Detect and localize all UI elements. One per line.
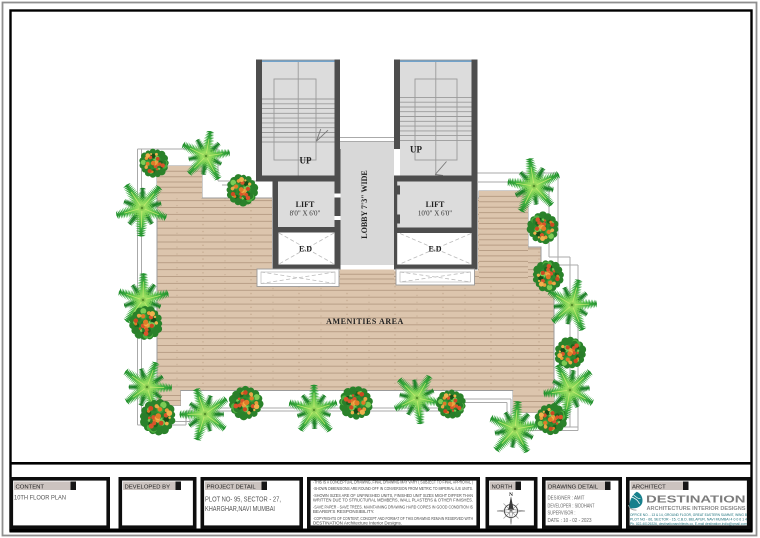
svg-text:BEARER'S RESPONSIBILITY.: BEARER'S RESPONSIBILITY.	[313, 509, 374, 514]
svg-text:UP: UP	[410, 145, 422, 155]
svg-text:LOBBY 7'3" WIDE: LOBBY 7'3" WIDE	[360, 170, 369, 238]
svg-text:KHARGHAR,NAVI MUMBAI: KHARGHAR,NAVI MUMBAI	[205, 505, 275, 513]
svg-text:DRAWING DETAIL: DRAWING DETAIL	[548, 484, 599, 490]
svg-text:ARCHITECT: ARCHITECT	[632, 484, 666, 490]
svg-text:LIFT: LIFT	[426, 200, 445, 209]
svg-text:DESTINATION Architecture Inter: DESTINATION Architecture Interior Design…	[313, 520, 402, 525]
svg-text:10'0" X 6'0": 10'0" X 6'0"	[418, 210, 452, 218]
svg-text:DEVELOPER : SIDDHANT: DEVELOPER : SIDDHANT	[548, 504, 596, 510]
svg-text:DESTINATION: DESTINATION	[646, 495, 746, 506]
svg-text:SUPERVISOR :: SUPERVISOR :	[548, 511, 576, 517]
svg-text:-THIS IS A CONCEPTUAL DRAWING,: -THIS IS A CONCEPTUAL DRAWING, FINAL DRA…	[313, 479, 473, 484]
svg-text:E.D: E.D	[428, 245, 441, 254]
svg-text:CONTENT: CONTENT	[16, 484, 45, 490]
svg-text:NORTH: NORTH	[492, 484, 513, 490]
svg-text:PLOT NO - 66, SECTOR - 15: PLOT NO - 66, SECTOR - 15, C.B.D. BELAPU…	[630, 518, 747, 522]
svg-text:E.D: E.D	[299, 245, 312, 254]
svg-text:UP: UP	[300, 156, 312, 166]
svg-text:OFFICE NO. - 13 & 14, GROUN: OFFICE NO. - 13 & 14, GROUND FLOOR, GREA…	[630, 513, 748, 517]
svg-text:10TH FLOOR PLAN: 10TH FLOOR PLAN	[14, 495, 66, 502]
svg-text:DEVELOPED BY: DEVELOPED BY	[125, 484, 171, 490]
svg-text:8'0" X 6'0": 8'0" X 6'0"	[290, 210, 321, 218]
svg-text:DESIGNER : AMIT: DESIGNER : AMIT	[548, 496, 586, 502]
svg-text:WRITTEN DUE TO STRUCTURAL MEMB: WRITTEN DUE TO STRUCTURAL MEMBERS, WALL …	[313, 498, 473, 503]
svg-text:Ph. 022-40126326, destination: Ph. 022-40126326, destinationarchitects.…	[630, 522, 747, 526]
svg-text:PLOT NO- 95, SECTOR - 27,: PLOT NO- 95, SECTOR - 27,	[205, 496, 281, 504]
svg-text:ARCHITECTURE INTERIOR DESIGN: ARCHITECTURE INTERIOR DESIGNS	[647, 506, 746, 512]
svg-text:N: N	[509, 492, 513, 498]
svg-text:PROJECT DETAIL: PROJECT DETAIL	[207, 484, 257, 490]
svg-text:LIFT: LIFT	[296, 200, 315, 209]
svg-text:DATE : 10 - 02 - 2023: DATE : 10 - 02 - 2023	[548, 518, 592, 524]
svg-text:-SHOWN DIMENSIONS ARE ROUND-OF: -SHOWN DIMENSIONS ARE ROUND-OFF IN CONVE…	[313, 486, 473, 491]
svg-text:AMENITIES AREA: AMENITIES AREA	[326, 317, 404, 326]
